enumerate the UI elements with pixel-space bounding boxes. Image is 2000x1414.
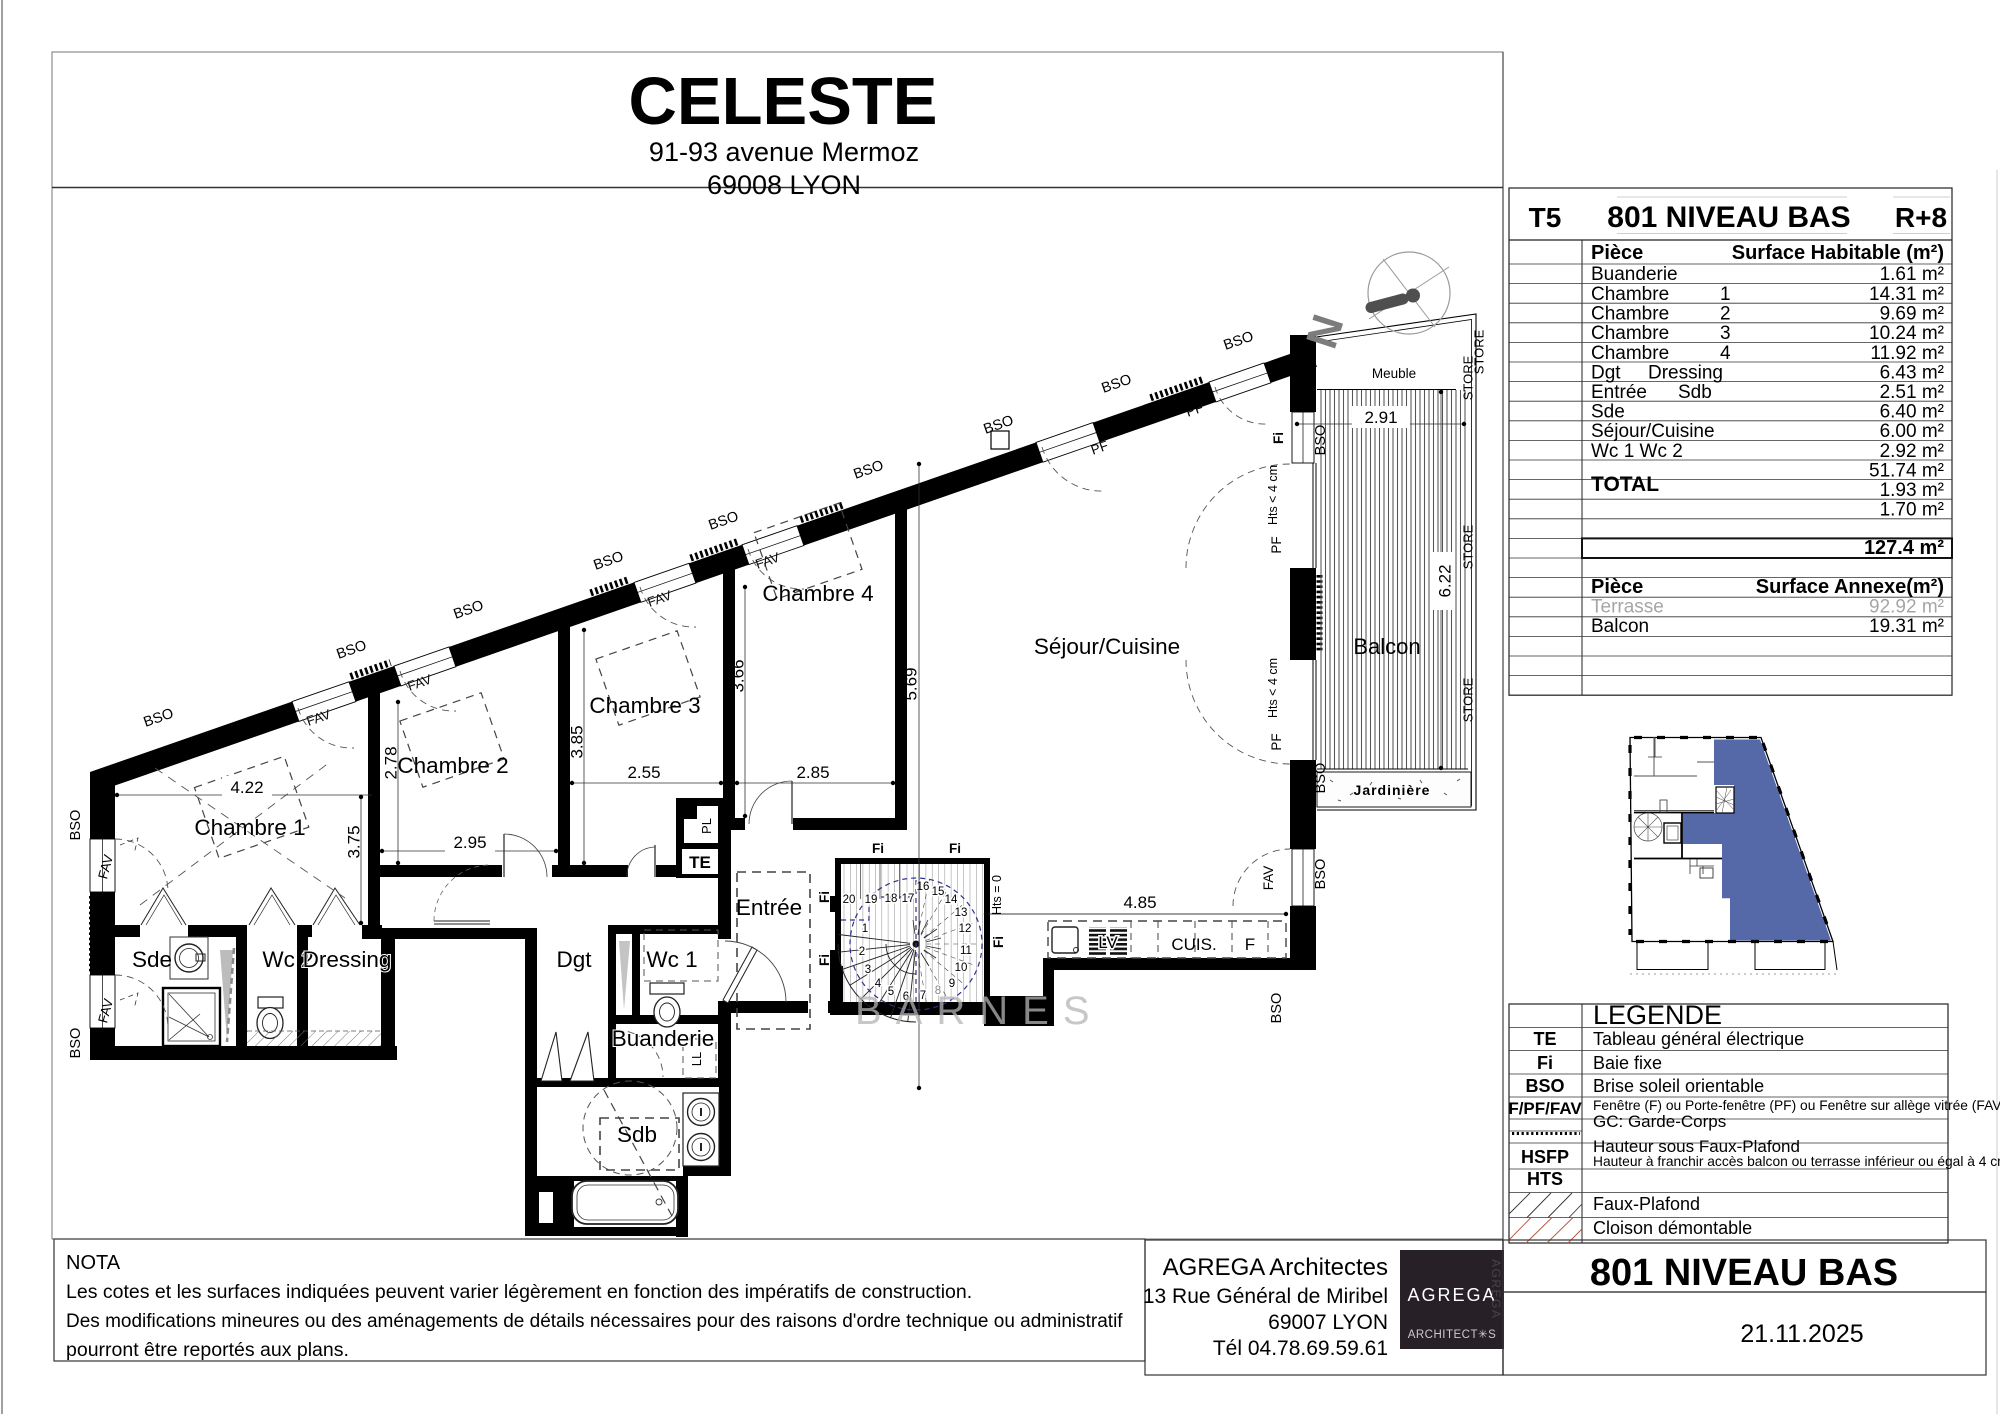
svg-text:Pièce: Pièce <box>1591 242 1643 264</box>
svg-text:Séjour/Cuisine: Séjour/Cuisine <box>1591 421 1715 442</box>
svg-text:LL: LL <box>689 1052 704 1066</box>
svg-text:Pièce: Pièce <box>1591 576 1643 598</box>
svg-text:19: 19 <box>865 894 878 906</box>
svg-text:6.00 m²: 6.00 m² <box>1880 421 1944 442</box>
svg-text:2.95: 2.95 <box>453 833 486 852</box>
svg-text:Sdb: Sdb <box>1678 382 1712 403</box>
svg-text:Faux-Plafond: Faux-Plafond <box>1593 1194 1700 1214</box>
svg-text:Chambre 4: Chambre 4 <box>762 581 873 606</box>
svg-text:14.31 m²: 14.31 m² <box>1869 284 1944 305</box>
svg-text:Jardinière: Jardinière <box>1354 782 1431 798</box>
svg-text:13 Rue Général de Miribel: 13 Rue Général de Miribel <box>1143 1285 1388 1308</box>
svg-text:TE: TE <box>1533 1029 1556 1049</box>
svg-text:3.75: 3.75 <box>344 825 363 858</box>
svg-text:6.43 m²: 6.43 m² <box>1880 362 1944 383</box>
svg-text:BSO: BSO <box>68 1028 84 1059</box>
svg-text:4.22: 4.22 <box>230 778 263 797</box>
svg-text:17: 17 <box>902 893 915 905</box>
svg-text:Fenêtre (F) ou Porte-fenêtre (: Fenêtre (F) ou Porte-fenêtre (PF) ou Fen… <box>1593 1098 2000 1113</box>
svg-text:Terrasse: Terrasse <box>1591 596 1664 617</box>
svg-text:Chambre 2: Chambre 2 <box>397 753 508 778</box>
svg-text:Buanderie: Buanderie <box>1591 264 1678 285</box>
svg-text:51.74 m²: 51.74 m² <box>1869 460 1944 481</box>
svg-text:AGREGA: AGREGA <box>1407 1285 1496 1305</box>
svg-text:127.4 m²: 127.4 m² <box>1864 537 1944 559</box>
svg-text:3: 3 <box>865 964 871 976</box>
svg-text:Fi: Fi <box>991 936 1006 948</box>
svg-text:11.92 m²: 11.92 m² <box>1870 343 1944 364</box>
svg-text:Sde: Sde <box>1591 402 1625 423</box>
svg-text:19.31 m²: 19.31 m² <box>1869 616 1944 637</box>
svg-text:Balcon: Balcon <box>1353 634 1420 659</box>
svg-text:Wc 1 Wc 2: Wc 1 Wc 2 <box>1591 441 1683 462</box>
svg-text:PF: PF <box>1269 733 1284 750</box>
svg-text:1: 1 <box>862 923 868 935</box>
svg-text:FAV: FAV <box>1261 866 1276 891</box>
svg-text:15: 15 <box>932 886 945 898</box>
svg-text:Buanderie: Buanderie <box>612 1026 715 1051</box>
svg-text:LEGENDE: LEGENDE <box>1593 1000 1722 1030</box>
svg-text:TOTAL: TOTAL <box>1591 473 1659 496</box>
svg-text:GC: Garde-Corps: GC: Garde-Corps <box>1593 1112 1726 1131</box>
svg-text:Meuble: Meuble <box>1372 366 1416 381</box>
svg-text:Tableau général électrique: Tableau général électrique <box>1593 1029 1804 1049</box>
svg-text:BSO: BSO <box>1525 1076 1564 1096</box>
svg-text:2.92 m²: 2.92 m² <box>1880 441 1944 462</box>
svg-text:3.85: 3.85 <box>567 725 586 758</box>
svg-text:AGREGA Architectes: AGREGA Architectes <box>1163 1254 1388 1281</box>
svg-text:5.69: 5.69 <box>901 667 920 700</box>
svg-text:Surface Habitable (m²): Surface Habitable (m²) <box>1732 242 1944 264</box>
svg-text:801 NIVEAU BAS: 801 NIVEAU BAS <box>1590 1252 1898 1294</box>
svg-text:Fi: Fi <box>1271 432 1286 444</box>
svg-text:Des modifications mineures ou: Des modifications mineures ou des aménag… <box>66 1311 1123 1332</box>
svg-text:4.85: 4.85 <box>1123 893 1156 912</box>
svg-text:Dressing: Dressing <box>1648 362 1723 383</box>
svg-text:Brise soleil orientable: Brise soleil orientable <box>1593 1076 1764 1096</box>
svg-text:Balcon: Balcon <box>1591 616 1649 637</box>
svg-text:6.22: 6.22 <box>1435 564 1454 597</box>
svg-text:STORE: STORE <box>1460 524 1475 569</box>
svg-text:21.11.2025: 21.11.2025 <box>1740 1320 1863 1348</box>
svg-text:3: 3 <box>1720 323 1731 344</box>
svg-text:11: 11 <box>960 945 972 957</box>
svg-text:Chambre: Chambre <box>1591 323 1669 344</box>
svg-text:BSO: BSO <box>1313 763 1329 794</box>
svg-text:Entrée: Entrée <box>1591 382 1647 403</box>
svg-text:1.70 m²: 1.70 m² <box>1880 500 1944 521</box>
svg-text:Hts < 4 cm: Hts < 4 cm <box>1266 465 1280 525</box>
svg-text:LV: LV <box>1098 933 1118 952</box>
svg-text:BARNES: BARNES <box>855 989 1104 1033</box>
svg-text:Dgt: Dgt <box>1591 362 1621 383</box>
svg-text:14: 14 <box>945 894 958 906</box>
svg-text:Cloison démontable: Cloison démontable <box>1593 1218 1752 1238</box>
svg-text:Baie fixe: Baie fixe <box>1593 1053 1662 1073</box>
svg-text:Dgt: Dgt <box>556 947 592 972</box>
svg-text:Fi: Fi <box>1537 1053 1553 1073</box>
svg-text:69008 LYON: 69008 LYON <box>707 170 861 200</box>
svg-text:pourront être reportés aux pla: pourront être reportés aux plans. <box>66 1339 349 1361</box>
svg-text:AGREGA: AGREGA <box>1489 1259 1503 1319</box>
svg-text:STORE: STORE <box>1471 329 1486 374</box>
svg-text:92.92 m²: 92.92 m² <box>1869 596 1944 617</box>
svg-text:2.55: 2.55 <box>627 763 660 782</box>
svg-text:Surface Annexe(m²): Surface Annexe(m²) <box>1756 576 1944 598</box>
svg-text:12: 12 <box>959 923 972 935</box>
svg-text:F: F <box>1245 935 1255 954</box>
svg-text:CELESTE: CELESTE <box>629 64 938 139</box>
svg-text:BSO: BSO <box>1269 993 1285 1024</box>
svg-text:Fi: Fi <box>817 891 832 903</box>
svg-text:Les cotes et les surfaces indi: Les cotes et les surfaces indiquées peuv… <box>66 1281 972 1303</box>
svg-text:Chambre: Chambre <box>1591 284 1669 305</box>
svg-text:Sdb: Sdb <box>617 1122 657 1147</box>
svg-text:R+8: R+8 <box>1895 202 1947 233</box>
svg-text:Wc 1: Wc 1 <box>646 947 697 972</box>
svg-text:2: 2 <box>1720 304 1731 325</box>
svg-text:69007 LYON: 69007 LYON <box>1268 1311 1388 1334</box>
svg-text:BSO: BSO <box>68 810 84 841</box>
svg-text:2.85: 2.85 <box>796 763 829 782</box>
svg-text:Tél 04.78.69.59.61: Tél 04.78.69.59.61 <box>1213 1337 1388 1360</box>
svg-text:13: 13 <box>955 907 968 919</box>
svg-text:Hts = 0: Hts = 0 <box>990 875 1004 915</box>
svg-text:1.93 m²: 1.93 m² <box>1880 480 1944 501</box>
svg-text:18: 18 <box>885 893 898 905</box>
svg-text:3.66: 3.66 <box>728 659 747 692</box>
svg-text:Fi: Fi <box>949 841 961 856</box>
svg-text:1: 1 <box>1720 284 1731 305</box>
svg-text:Dressing: Dressing <box>303 947 392 972</box>
svg-text:Sde: Sde <box>132 947 172 972</box>
svg-text:PF: PF <box>1269 536 1284 553</box>
svg-text:2.91: 2.91 <box>1364 408 1397 427</box>
svg-text:9.69 m²: 9.69 m² <box>1880 304 1944 325</box>
svg-text:10: 10 <box>955 962 968 974</box>
svg-text:T5: T5 <box>1529 202 1562 233</box>
svg-text:Chambre: Chambre <box>1591 343 1669 364</box>
svg-text:10.24 m²: 10.24 m² <box>1869 323 1944 344</box>
svg-text:2.78: 2.78 <box>381 746 400 779</box>
svg-text:Hts < 4 cm: Hts < 4 cm <box>1266 658 1280 718</box>
svg-text:Fi: Fi <box>817 954 832 966</box>
svg-text:TE: TE <box>689 853 711 872</box>
svg-text:ARCHITECT✳S: ARCHITECT✳S <box>1408 1329 1497 1341</box>
svg-text:16: 16 <box>917 881 930 893</box>
svg-text:NOTA: NOTA <box>66 1252 121 1274</box>
svg-text:2.51 m²: 2.51 m² <box>1880 382 1944 403</box>
svg-text:PL: PL <box>699 818 714 834</box>
svg-text:2: 2 <box>859 946 865 958</box>
svg-text:Fi: Fi <box>872 841 884 856</box>
svg-text:Séjour/Cuisine: Séjour/Cuisine <box>1034 634 1180 659</box>
svg-text:4: 4 <box>1720 343 1731 364</box>
svg-text:1.61 m²: 1.61 m² <box>1880 264 1944 285</box>
svg-text:91-93 avenue Mermoz: 91-93 avenue Mermoz <box>649 137 919 167</box>
svg-text:Hauteur à franchir accès balco: Hauteur à franchir accès balcon ou terra… <box>1593 1154 2000 1169</box>
svg-text:Chambre 3: Chambre 3 <box>589 693 700 718</box>
svg-text:CUIS.: CUIS. <box>1171 935 1216 954</box>
svg-text:20: 20 <box>843 894 856 906</box>
svg-text:6.40 m²: 6.40 m² <box>1880 402 1944 423</box>
svg-text:STORE: STORE <box>1460 677 1475 722</box>
svg-text:Entrée: Entrée <box>736 895 802 920</box>
svg-text:801 NIVEAU BAS: 801 NIVEAU BAS <box>1607 201 1850 234</box>
svg-text:Chambre 1: Chambre 1 <box>194 815 305 840</box>
svg-text:HSFP: HSFP <box>1521 1147 1569 1167</box>
svg-text:F/PF/FAV: F/PF/FAV <box>1508 1099 1582 1118</box>
svg-text:BSO: BSO <box>1313 859 1329 890</box>
svg-text:BSO: BSO <box>1313 425 1329 456</box>
svg-text:HTS: HTS <box>1527 1169 1563 1189</box>
svg-text:Chambre: Chambre <box>1591 304 1669 325</box>
